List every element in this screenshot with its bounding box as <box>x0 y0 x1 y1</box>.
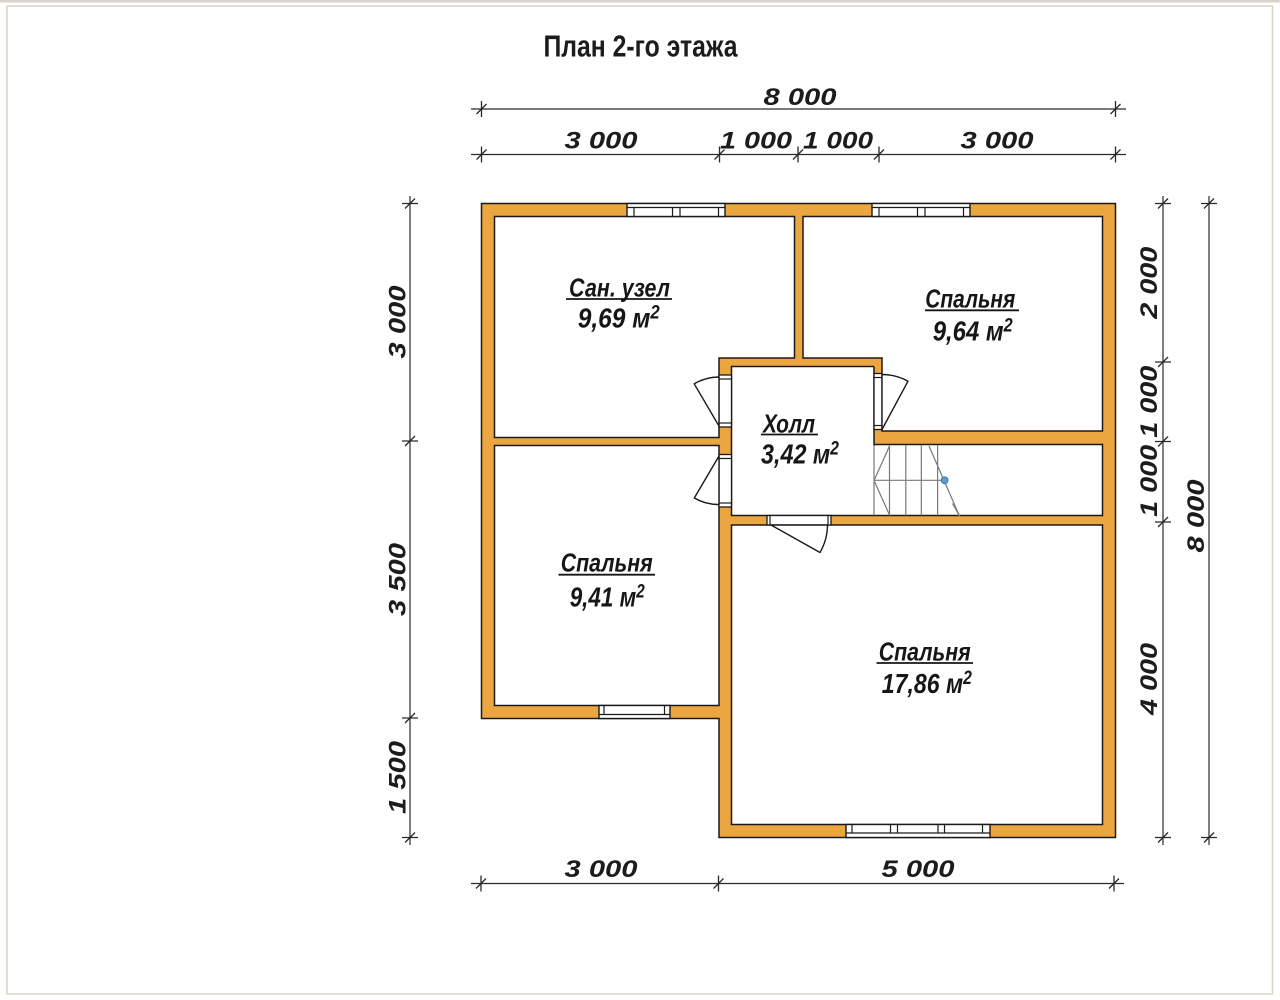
svg-text:3 000: 3 000 <box>961 128 1035 155</box>
svg-text:5 000: 5 000 <box>882 856 956 883</box>
svg-text:17,86 м2: 17,86 м2 <box>882 668 972 699</box>
svg-text:Спальня: Спальня <box>879 636 971 666</box>
svg-text:3 000: 3 000 <box>385 285 412 359</box>
svg-text:4 000: 4 000 <box>1136 642 1163 716</box>
svg-text:3 000: 3 000 <box>565 856 639 883</box>
svg-text:8 000: 8 000 <box>764 84 838 111</box>
svg-text:1 500: 1 500 <box>385 740 412 814</box>
svg-text:2 000: 2 000 <box>1136 246 1163 320</box>
svg-text:1 000: 1 000 <box>1136 444 1163 517</box>
svg-text:9,64 м2: 9,64 м2 <box>933 316 1013 347</box>
svg-text:Сан. узел: Сан. узел <box>569 273 670 303</box>
svg-text:3,42 м2: 3,42 м2 <box>761 439 839 470</box>
svg-text:1 000: 1 000 <box>803 128 874 155</box>
svg-text:План 2-го этажа: План 2-го этажа <box>544 29 739 64</box>
svg-text:3 500: 3 500 <box>385 542 412 616</box>
svg-text:9,41 м2: 9,41 м2 <box>570 582 645 613</box>
svg-text:8 000: 8 000 <box>1183 479 1210 553</box>
svg-text:Спальня: Спальня <box>561 548 653 578</box>
svg-text:9,69 м2: 9,69 м2 <box>578 303 660 334</box>
svg-text:1 000: 1 000 <box>1136 365 1163 438</box>
svg-text:1 000: 1 000 <box>720 128 793 155</box>
svg-text:3 000: 3 000 <box>565 128 639 155</box>
svg-text:Спальня: Спальня <box>925 284 1015 314</box>
